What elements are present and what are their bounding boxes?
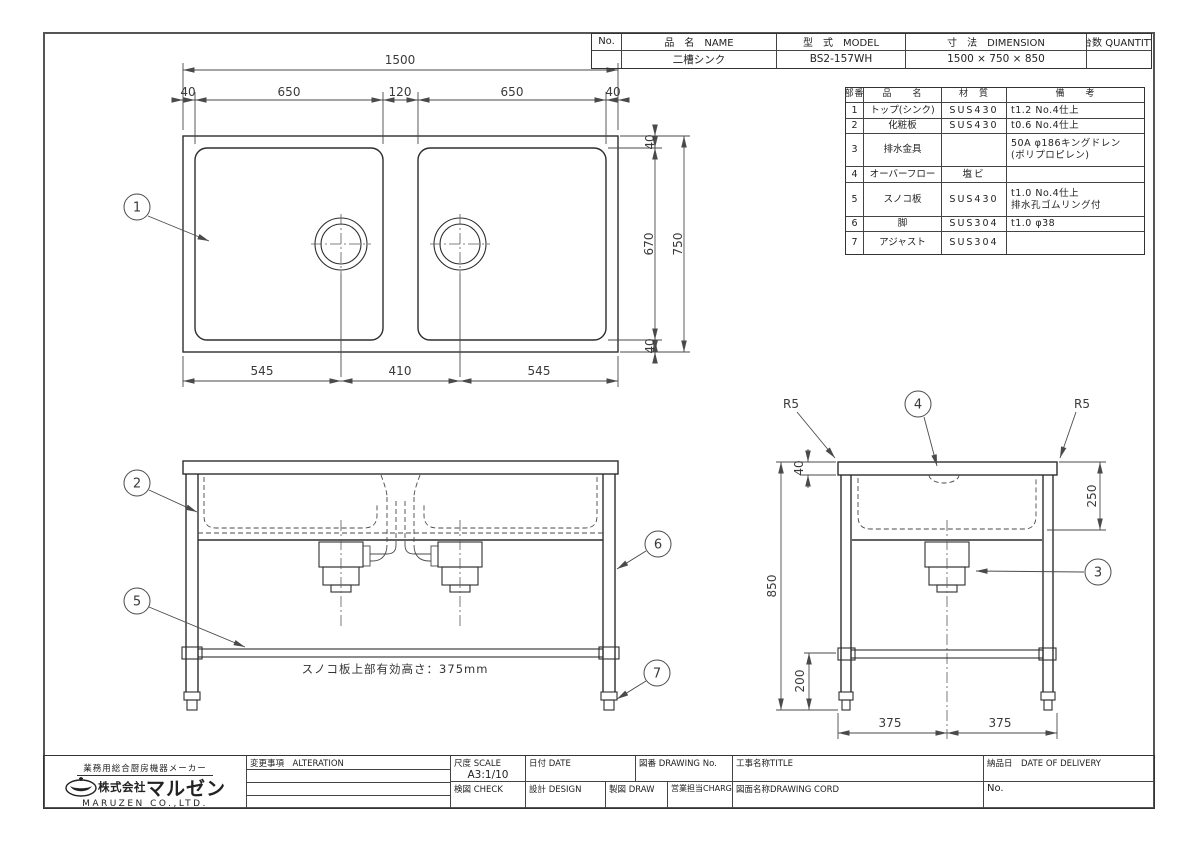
side-top-rail	[838, 462, 1057, 475]
company-name: マルゼン	[146, 774, 226, 801]
svg-text:4: 4	[914, 398, 922, 413]
front-brace	[198, 649, 603, 657]
part-name: トップ(シンク)	[864, 103, 942, 119]
val-model: BS2-157WH	[777, 51, 906, 69]
fillet-label-left: R5	[783, 397, 835, 458]
part-name: 排水金具	[864, 134, 942, 167]
plan-view: 1500 40 650 120 650 40 40	[124, 53, 690, 387]
drawing-sheet: 1500 40 650 120 650 40 40	[0, 0, 1200, 848]
part-ref: 6	[846, 217, 864, 232]
col-model: 型 式 MODEL	[777, 34, 906, 51]
dim-right-40B: 40	[643, 338, 657, 353]
part-name: オーバーフロー	[864, 167, 942, 183]
dim-375R: 375	[989, 716, 1012, 730]
front-overflow-pipes	[381, 475, 420, 545]
dim-bottom-545R: 545	[528, 364, 551, 378]
dim-200: 200	[793, 670, 807, 693]
val-name: 二槽シンク	[622, 51, 777, 69]
part-remarks	[1007, 167, 1144, 183]
part-material: SUS430	[942, 183, 1007, 217]
parts-col-name: 品 名	[864, 88, 942, 103]
parts-col-remarks: 備 考	[1007, 88, 1144, 103]
part-ref: 2	[846, 119, 864, 134]
part-remarks: 50A φ186キングドレン(ポリプロピレン)	[1007, 134, 1144, 167]
part-material: 塩ビ	[942, 167, 1007, 183]
dim-right-670: 670	[642, 233, 656, 256]
company-brand: 株式会社 マルゼン	[44, 776, 246, 798]
title-block: 業務用総合厨房機器メーカー 株式会社 マルゼン MARUZEN CO.,LTD.…	[43, 755, 1155, 809]
part-ref: 3	[846, 134, 864, 167]
parts-col-ref: 部番	[846, 88, 864, 103]
title-cell: 工事名称TITLE	[733, 756, 984, 782]
svg-text:6: 6	[654, 538, 662, 553]
scale-value: A3:1/10	[451, 769, 525, 781]
alteration-row	[247, 796, 451, 808]
col-no: No.	[592, 34, 622, 51]
front-right-basin-hidden	[424, 477, 597, 528]
model-header-table: No. 品 名 NAME 型 式 MODEL 寸 法 DIMENSION 台数 …	[591, 33, 1152, 69]
alteration-row	[247, 770, 451, 783]
date-cell: 日付 DATE	[526, 756, 636, 782]
dim-top-120: 120	[389, 85, 412, 99]
balloon-7: 7	[617, 660, 670, 699]
part-remarks: t1.0 No.4仕上排水孔ゴムリング付	[1007, 183, 1144, 217]
company-box: 業務用総合厨房機器メーカー 株式会社 マルゼン MARUZEN CO.,LTD.	[44, 756, 247, 808]
draw-cell: 製図 DRAW	[606, 782, 668, 808]
front-left-basin-hidden	[204, 477, 377, 528]
dim-750: 750	[671, 233, 685, 256]
part-name: 脚	[864, 217, 942, 232]
alteration-header: 変更事項 ALTERATION	[247, 756, 451, 770]
svg-text:1: 1	[133, 201, 141, 216]
part-name: 化粧板	[864, 119, 942, 134]
maruzen-logo-icon	[64, 777, 98, 797]
svg-text:2: 2	[133, 477, 141, 492]
svg-text:3: 3	[1094, 566, 1102, 581]
front-flange-right	[431, 546, 438, 566]
part-material: SUS304	[942, 217, 1007, 232]
delivery-no-cell: No.	[984, 782, 1154, 808]
check-cell: 検図 CHECK	[451, 782, 526, 808]
val-dimension: 1500 × 750 × 850	[906, 51, 1087, 69]
dim-1500: 1500	[385, 53, 416, 67]
part-material: SUS304	[942, 232, 1007, 254]
col-dimension: 寸 法 DIMENSION	[906, 34, 1087, 51]
part-remarks: t1.2 No.4仕上	[1007, 103, 1144, 119]
part-material: SUS430	[942, 119, 1007, 134]
part-ref: 5	[846, 183, 864, 217]
balloon-6: 6	[617, 531, 671, 569]
parts-table: 部番 品 名 材 質 備 考 1 トップ(シンク) SUS430 t1.2 No…	[845, 87, 1145, 255]
drawing-cord-cell: 図面名称DRAWING CORD	[733, 782, 984, 808]
side-view: 40 850 200 250 375 375 R5 R5	[765, 391, 1111, 739]
dim-right-40T: 40	[643, 134, 657, 149]
front-drain-elbows	[370, 545, 431, 561]
val-no	[592, 51, 622, 69]
val-quantity	[1087, 51, 1151, 69]
part-name: スノコ板	[864, 183, 942, 217]
parts-col-material: 材 質	[942, 88, 1007, 103]
part-ref: 7	[846, 232, 864, 254]
part-ref: 1	[846, 103, 864, 119]
svg-text:R5: R5	[1074, 397, 1090, 411]
front-feet	[184, 692, 617, 710]
balloon-5: 5	[124, 588, 245, 647]
right-basin	[418, 148, 606, 340]
front-top-rail	[183, 461, 618, 474]
company-prefix: 株式会社	[98, 779, 146, 795]
col-quantity: 台数 QUANTITY	[1087, 34, 1151, 51]
part-remarks	[1007, 232, 1144, 254]
sink-top-outline	[183, 136, 618, 352]
svg-text:5: 5	[133, 595, 141, 610]
dim-850: 850	[765, 575, 779, 598]
dim-top-650L: 650	[278, 85, 301, 99]
design-cell: 設計 DESIGN	[526, 782, 606, 808]
part-remarks: t0.6 No.4仕上	[1007, 119, 1144, 134]
scale-cell: 尺度 SCALE A3:1/10	[451, 756, 526, 782]
side-overflow-hole	[929, 475, 959, 483]
balloon-1: 1	[124, 194, 209, 241]
front-legs	[186, 474, 615, 692]
svg-text:7: 7	[653, 667, 661, 682]
front-flange-left	[363, 546, 370, 566]
drawing-no-cell: 図番 DRAWING No.	[636, 756, 733, 782]
company-name-en: MARUZEN CO.,LTD.	[44, 799, 246, 809]
col-name: 品 名 NAME	[622, 34, 777, 51]
part-remarks: t1.0 φ38	[1007, 217, 1144, 232]
part-name: アジャスト	[864, 232, 942, 254]
front-note: スノコ板上部有効高さ：375mm	[302, 662, 489, 676]
dim-top-650R: 650	[501, 85, 524, 99]
dim-250: 250	[1085, 485, 1099, 508]
front-view: スノコ板上部有効高さ：375mm 2 5 6 7	[124, 461, 671, 710]
part-ref: 4	[846, 167, 864, 183]
charge-cell: 営業担当CHARGE	[668, 782, 733, 808]
fillet-label-right: R5	[1060, 397, 1090, 458]
balloon-4: 4	[905, 391, 937, 466]
svg-text:R5: R5	[783, 397, 799, 411]
delivery-cell: 納品日 DATE OF DELIVERY	[984, 756, 1154, 782]
alteration-row	[247, 783, 451, 796]
dim-bottom-545L: 545	[251, 364, 274, 378]
part-material: SUS430	[942, 103, 1007, 119]
dim-40-side: 40	[792, 460, 806, 475]
dim-top-40R: 40	[605, 85, 620, 99]
part-material	[942, 134, 1007, 167]
dim-375L: 375	[879, 716, 902, 730]
dim-top-40L: 40	[180, 85, 195, 99]
dim-bottom-410: 410	[389, 364, 412, 378]
